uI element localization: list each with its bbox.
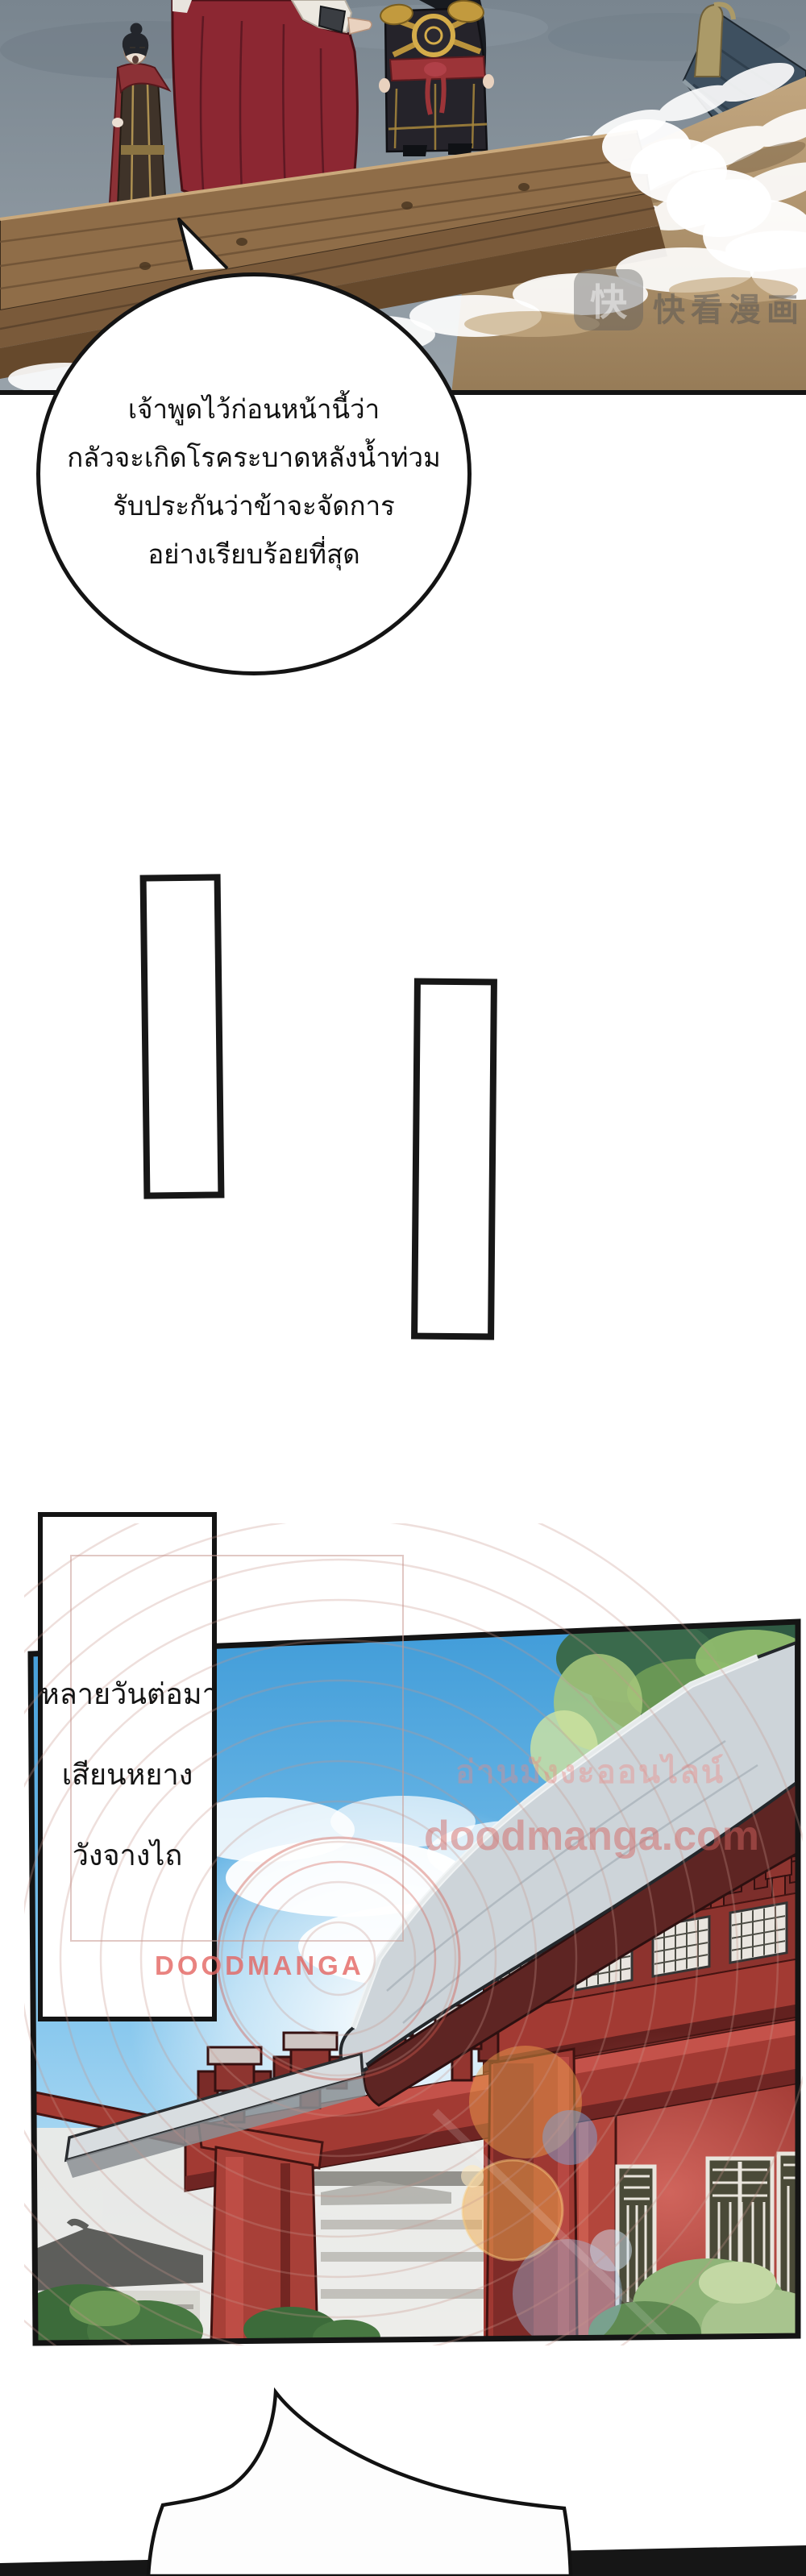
- bubble-line: เจ้าพูดไว้ก่อนหน้านี้ว่า: [44, 385, 463, 434]
- empty-panel-1: [140, 874, 225, 1199]
- manga-page: { "panel1": { "watermark": { "logo_glyph…: [0, 0, 806, 2576]
- gold-emblem: [414, 16, 453, 55]
- caption-text: หลายวันต่อมา เสียนหยาง วังจางไถ: [40, 1654, 214, 1896]
- bubble-line: กลัวจะเกิดโรคระบาดหลังน้ำท่วม: [44, 434, 463, 482]
- bubble-line: รับประกันว่าข้าจะจัดการ: [44, 482, 463, 530]
- caption-line: วังจางไถ: [40, 1815, 214, 1896]
- speech-bubble-tail: [153, 206, 242, 278]
- caption-line: เสียนหยาง: [40, 1735, 214, 1815]
- bubble-line: อย่างเรียบร้อยที่สุด: [44, 530, 463, 579]
- caption-line: หลายวันต่อมา: [40, 1654, 214, 1735]
- speech-bubble-bottom: [148, 2392, 571, 2576]
- character-red-cape: [172, 0, 372, 198]
- empty-panel-2: [411, 978, 497, 1340]
- topknot: [131, 23, 143, 35]
- character-armored-general: [379, 0, 494, 156]
- speech-bubble-text: เจ้าพูดไว้ก่อนหน้านี้ว่า กลัวจะเกิดโรคระ…: [44, 385, 463, 579]
